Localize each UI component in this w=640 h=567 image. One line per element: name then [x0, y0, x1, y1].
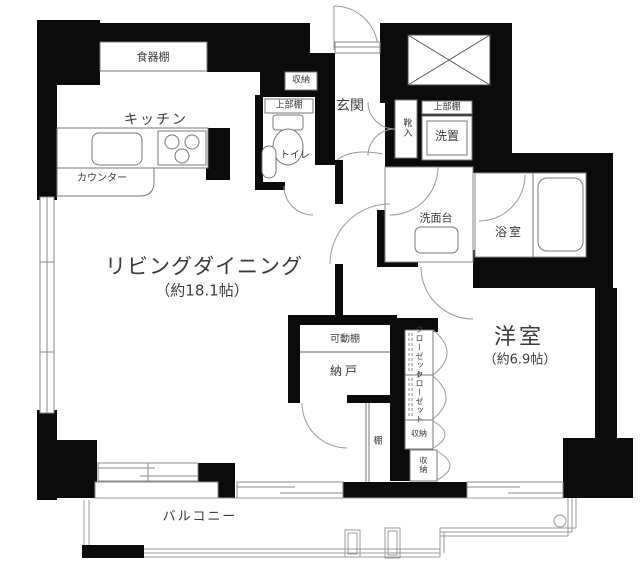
floor-plan: 食器棚 キッチン カウンター 収納 上部棚 トイレ 玄関 靴入 上部棚 洗置 洗… [0, 0, 640, 567]
closet-door-arc [433, 421, 445, 448]
bathroom-label: 浴室 [495, 226, 523, 238]
washer-label: 洗置 [435, 130, 459, 142]
counter-label: カウンター [77, 174, 127, 184]
storage-1-label: 収納 [411, 430, 427, 438]
toilet-upper-shelf-label: 上部棚 [275, 102, 302, 111]
living-label: リビングダイニング [105, 257, 303, 278]
western-room-door-arc [421, 267, 473, 319]
closet-2-label: クローゼット [415, 370, 423, 424]
shelf-divider [366, 403, 369, 482]
dish-shelf-label: 食器棚 [137, 52, 170, 63]
western-room-window [467, 482, 563, 498]
storage-room-door-gap [300, 393, 347, 403]
balcony-label: バルコニー [163, 511, 238, 524]
washer-upper-shelf-label: 上部棚 [433, 104, 460, 113]
storage-2-label: 収納 [419, 456, 427, 474]
washbasin-sink [415, 227, 458, 253]
living-window-right [237, 482, 343, 498]
storage-room-label: 納戸 [330, 365, 360, 377]
bathtub [538, 178, 583, 251]
window-sill [95, 482, 218, 498]
stove-burner [175, 149, 189, 163]
toilet-label: トイレ [280, 151, 310, 161]
stove-burner [165, 135, 179, 149]
western-room-size-label: （約6.9帖） [484, 354, 557, 367]
kitchen-fixtures [57, 128, 208, 196]
genkan-step-line [337, 152, 383, 160]
toilet-door-arc [284, 186, 313, 215]
closet-door-arc [433, 376, 446, 419]
closet-door-arc [433, 330, 447, 375]
movable-shelf-label: 可動棚 [330, 335, 360, 345]
western-room-label: 洋室 [494, 327, 544, 349]
washroom-label: 洗面台 [420, 213, 453, 224]
toilet-tank [273, 115, 303, 130]
shoe-cabinet-label: 靴入 [402, 118, 411, 138]
hall-storage-label: 収納 [292, 77, 310, 86]
floor-plan-drawing [0, 0, 640, 567]
balcony-railing [84, 498, 576, 558]
closet-door-arc [437, 451, 450, 480]
balcony-partition-inner [388, 531, 397, 555]
entrance-label: 玄関 [336, 99, 364, 113]
kitchen-sink [92, 133, 142, 165]
living-size-label: （約18.1帖） [155, 284, 248, 299]
balcony-drain [554, 515, 566, 527]
balcony-partition-inner [348, 533, 357, 554]
shelf-label: 棚 [373, 438, 382, 447]
storage-room-door-arc [302, 403, 347, 448]
kitchen-label: キッチン [124, 113, 188, 127]
toilet-hand-basin [262, 146, 276, 178]
stove-burner [185, 135, 199, 149]
